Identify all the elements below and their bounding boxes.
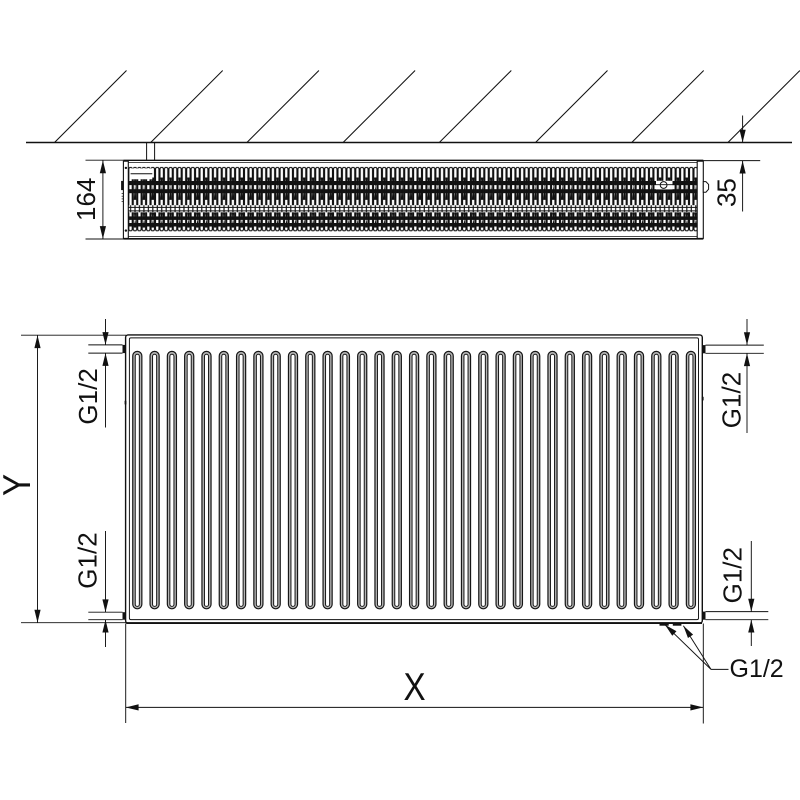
svg-text:G1/2: G1/2 [718, 547, 748, 603]
svg-text:X: X [404, 664, 426, 708]
svg-text:G1/2: G1/2 [717, 372, 747, 428]
svg-text:G1/2: G1/2 [730, 655, 784, 683]
svg-text:G1/2: G1/2 [73, 368, 103, 424]
svg-text:G1/2: G1/2 [73, 532, 103, 588]
svg-text:35: 35 [711, 178, 741, 207]
svg-text:Y: Y [0, 474, 39, 496]
svg-text:164: 164 [71, 178, 101, 221]
